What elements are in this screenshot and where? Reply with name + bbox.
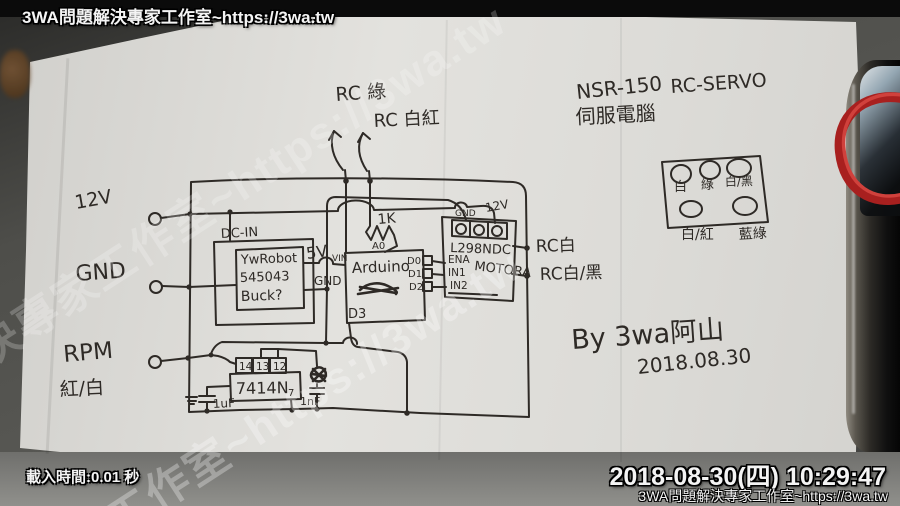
smartphone-screen — [860, 66, 900, 216]
paper-sheet — [0, 0, 900, 506]
paper-crease — [620, 18, 622, 462]
watermark-bottom-right: 3WA問題解決專家工作室~https://3wa.tw — [638, 486, 888, 506]
watermark-top-left: 3WA問題解決專家工作室~https://3wa.tw — [22, 3, 334, 28]
smartphone-edge — [846, 60, 900, 452]
load-time-text: 載入時間:0.01 秒 — [26, 466, 139, 487]
smartphone-frame-highlight — [852, 84, 855, 414]
desk-object — [0, 50, 30, 98]
photo-frame: 12V GND RPM 紅/白 RC 綠 RC 白紅 1K DC-IN YwRo… — [0, 0, 900, 506]
